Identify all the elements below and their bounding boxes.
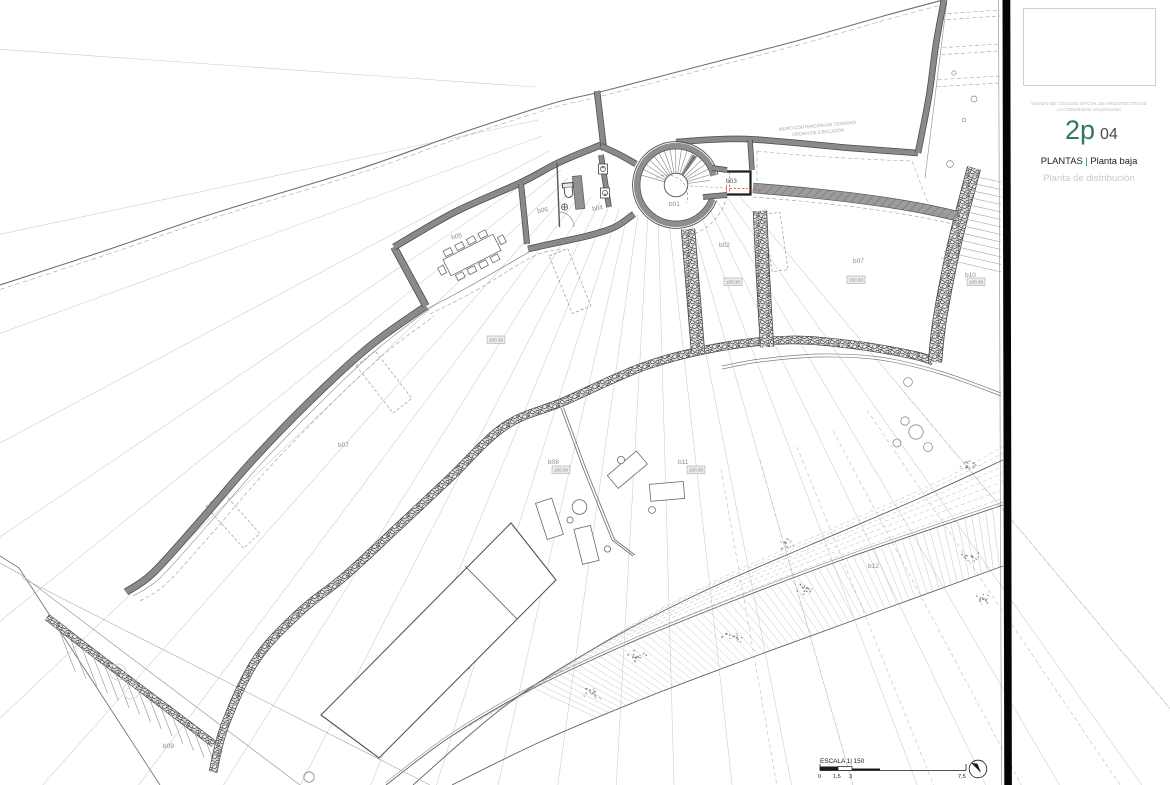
svg-text:b08: b08 [548,459,559,466]
svg-text:b09: b09 [163,743,174,750]
svg-text:±00.30: ±00.30 [689,468,703,473]
svg-text:VISADO DE COLEGIO OFICIAL DE A: VISADO DE COLEGIO OFICIAL DE ARQUITECTOS… [1031,101,1147,106]
svg-text:ESCALA 1| 150: ESCALA 1| 150 [820,758,865,765]
svg-text:04: 04 [1100,126,1118,143]
svg-text:0: 0 [818,774,821,780]
svg-text:Planta de distribución: Planta de distribución [1043,173,1135,184]
svg-text:b03: b03 [726,178,737,185]
svg-text:b01: b01 [669,201,680,208]
svg-text:b12: b12 [868,563,879,570]
svg-text:b02: b02 [719,242,730,249]
svg-text:LA COMUNIDAD VALENCIANA: LA COMUNIDAD VALENCIANA [1056,107,1122,112]
svg-text:3: 3 [849,774,852,780]
svg-text:2p: 2p [1065,115,1095,145]
svg-text:b11: b11 [678,459,689,466]
svg-text:±00.30: ±00.30 [554,468,568,473]
svg-text:7,5: 7,5 [958,774,966,780]
svg-text:b07: b07 [338,442,349,449]
svg-text:b04: b04 [592,204,604,213]
svg-text:±00.30: ±00.30 [726,280,740,285]
svg-text:PLANTAS | Planta baja: PLANTAS | Planta baja [1041,155,1138,166]
svg-text:b06: b06 [537,206,549,215]
svg-text:±00.30: ±00.30 [489,338,503,343]
svg-text:b07: b07 [853,258,864,265]
svg-text:±00.30: ±00.30 [849,278,863,283]
svg-text:±00.30: ±00.30 [969,280,983,285]
svg-text:b05: b05 [451,232,463,241]
svg-text:1,5: 1,5 [833,774,841,780]
